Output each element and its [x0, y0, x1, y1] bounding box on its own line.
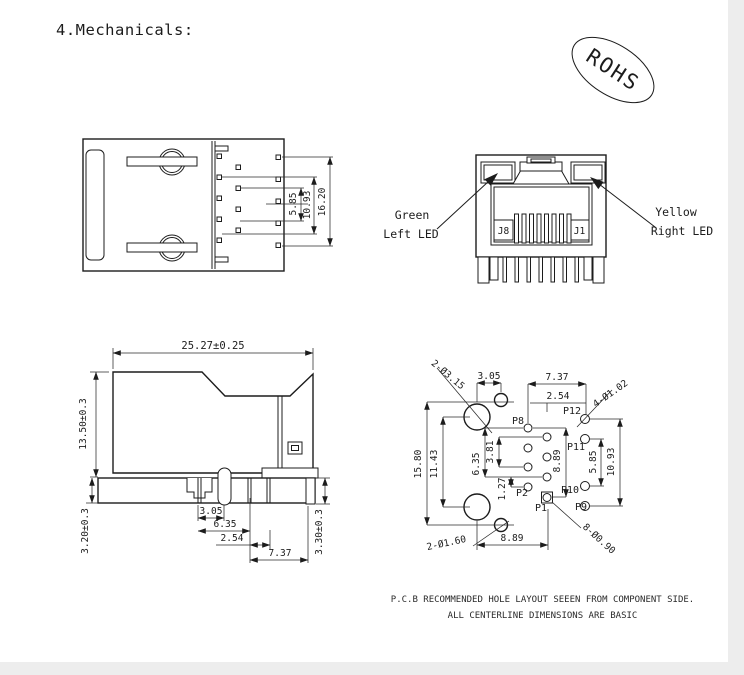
- label-p9: P9: [575, 502, 587, 513]
- rohs-stamp: ROHS: [561, 24, 665, 116]
- dim-10-93: 10.93: [302, 191, 313, 220]
- drawing-canvas: ROHS: [0, 0, 744, 675]
- pcb-layout-drawing: 2-Ø3.15 2-Ø1.60 4-Ø1.02 8-Ø0.90 15.80 11…: [413, 358, 630, 557]
- pcb-note-line1: P.C.B RECOMMENDED HOLE LAYOUT SEEEN FROM…: [385, 592, 700, 608]
- dim-5-85: 5.85: [288, 193, 299, 216]
- label-p10: P10: [561, 485, 579, 496]
- dim-2-54: 2.54: [221, 533, 244, 544]
- hole-p8: [524, 424, 532, 432]
- dim-15-80: 15.80: [413, 449, 424, 478]
- hole-p4: [524, 463, 532, 471]
- dim-3-81: 3.81: [485, 440, 496, 463]
- callout-2-1-60: 2-Ø1.60: [426, 534, 468, 553]
- dim-3-30: 3.30±0.3: [314, 509, 325, 555]
- mount-peg: [306, 478, 315, 504]
- dim-13-50: 13.50±0.3: [78, 398, 89, 449]
- dim-pcb-5-85: 5.85: [588, 451, 599, 474]
- label-j1: J1: [574, 226, 586, 237]
- callout-2-3-15: 2-Ø3.15: [429, 358, 467, 392]
- front-view-drawing: J8 J1 G: [383, 155, 713, 283]
- dim-pcb-6-35: 6.35: [471, 453, 482, 476]
- dim-16-20: 16.20: [317, 187, 328, 216]
- hole-1-60-top: [495, 394, 508, 407]
- side-window: [288, 442, 302, 454]
- label-left-led: Left LED: [383, 227, 438, 241]
- dim-11-43: 11.43: [429, 450, 440, 479]
- pcb-note-line2: ALL CENTERLINE DIMENSIONS ARE BASIC: [385, 608, 700, 624]
- label-yellow: Yellow: [655, 205, 697, 219]
- hole-p10: [581, 482, 590, 491]
- dim-6-35: 6.35: [214, 519, 237, 530]
- hole-p7: [543, 433, 551, 441]
- dim-3-20: 3.20±0.3: [80, 508, 91, 554]
- dim-8-89-v: 8.89: [552, 449, 563, 472]
- label-right-led: Right LED: [651, 224, 713, 238]
- hole-p6: [524, 444, 532, 452]
- pcb-notes: P.C.B RECOMMENDED HOLE LAYOUT SEEEN FROM…: [385, 592, 700, 624]
- dim-3-05: 3.05: [200, 506, 223, 517]
- label-green: Green: [395, 208, 430, 222]
- label-p1: P1: [535, 503, 547, 514]
- emi-post: [218, 468, 231, 505]
- front-view-legs: [478, 257, 604, 283]
- dim-8-89-h: 8.89: [501, 533, 524, 544]
- callout-8-0-90: 8-Ø0.90: [580, 522, 617, 557]
- dim-pcb-2-54: 2.54: [547, 391, 570, 402]
- hole-p5: [543, 453, 551, 461]
- label-p12: P12: [563, 406, 581, 417]
- label-p11: P11: [567, 442, 585, 453]
- top-view-drawing: 5.85 10.93 16.20: [83, 139, 333, 271]
- rohs-text: ROHS: [582, 44, 644, 96]
- dim-1-27: 1.27: [497, 478, 508, 501]
- callout-4-1-02: 4-Ø1.02: [591, 378, 630, 410]
- side-view-body: [113, 372, 313, 473]
- mechanical-drawing-page: 4.Mechanicals: ROHS: [0, 0, 744, 675]
- hole-p3: [543, 473, 551, 481]
- label-p2: P2: [516, 488, 528, 499]
- side-view-drawing: 25.27±0.25 13.50±0.3 3.20±0.3 3.30±0.3 3…: [78, 340, 330, 563]
- dim-7-37: 7.37: [269, 548, 292, 559]
- dim-pcb-10-93: 10.93: [606, 448, 617, 477]
- dim-pcb-3-05: 3.05: [478, 371, 501, 382]
- led-window-right: [571, 162, 605, 183]
- dim-25-27: 25.27±0.25: [181, 340, 244, 352]
- label-p8: P8: [512, 416, 524, 427]
- dim-pcb-7-37: 7.37: [546, 372, 569, 383]
- pcb-dimensions: 15.80 11.43 3.05 7.37 2.54 6.: [413, 371, 623, 550]
- label-j8: J8: [498, 226, 510, 237]
